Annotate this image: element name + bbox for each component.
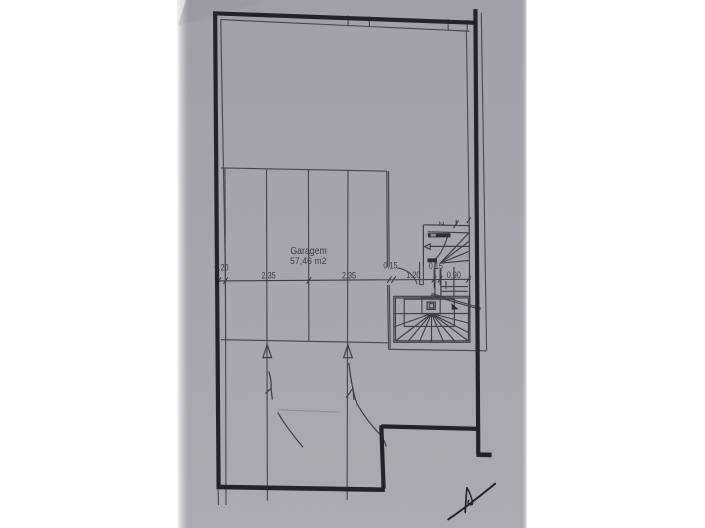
svg-text:0.20: 0.20 <box>214 262 228 272</box>
svg-text:0.15: 0.15 <box>429 261 443 271</box>
svg-text:2.35: 2.35 <box>262 270 276 280</box>
svg-text:2: 2 <box>437 221 444 225</box>
svg-text:57,46 m2: 57,46 m2 <box>290 256 327 267</box>
svg-text:1.20: 1.20 <box>406 270 420 280</box>
svg-text:0.15: 0.15 <box>383 260 397 270</box>
svg-text:0.90: 0.90 <box>447 270 461 280</box>
svg-text:2.35: 2.35 <box>342 270 356 280</box>
